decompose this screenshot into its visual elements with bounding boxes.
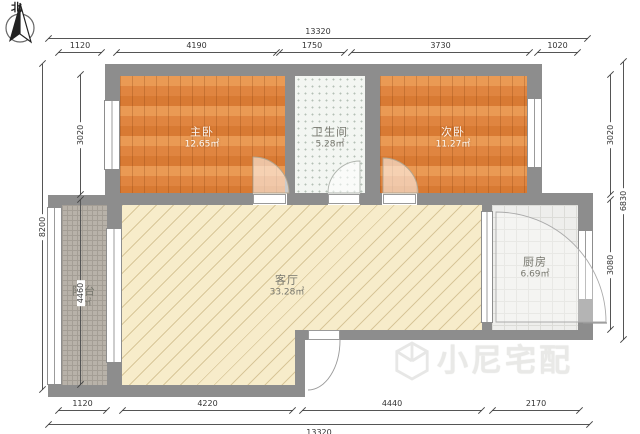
dim-top-2: 4190 [116,52,277,53]
floor-plan: 北 [0,0,640,434]
dim-right-1: 3020 [610,75,611,195]
room-name: 主卧 [185,126,220,140]
wall-bottom-right-b [340,330,593,340]
dim-left-total: 8200 [42,64,43,390]
dim-bottom-1: 1120 [58,410,107,411]
wall-mid-b [287,193,328,205]
label-kitchen: 厨房 6.69㎡ [520,256,549,281]
door-leaf-bath [328,194,360,204]
wall-bottom-left [48,385,305,397]
compass: 北 [2,0,42,56]
room-area: 6.69㎡ [520,269,549,280]
label-master-bedroom: 主卧 12.65㎡ [185,126,220,151]
room-name: 次卧 [436,126,471,140]
room-area: 33.28㎡ [270,287,305,298]
window-second-right [527,98,542,168]
wall-mid-c [360,193,382,205]
dim-top-4: 3730 [351,52,530,53]
room-name: 卫生间 [312,126,348,140]
wall-mid-a [120,193,253,205]
dim-value: 4220 [195,400,219,408]
door-leaf-entry [308,330,340,340]
label-living-room: 客厅 33.28㎡ [270,274,305,299]
dim-value: 1120 [70,400,94,408]
window-kitchen-right [578,230,593,300]
dim-value: 6830 [620,188,628,214]
wall-step [295,330,305,397]
wall-bath-second [365,76,380,193]
door-leaf-master [253,194,286,204]
dim-top-total: 13320 [48,38,588,39]
watermark-text: 小尼宅配 [437,346,573,377]
wall-bottom-right-a [295,330,308,340]
dim-left-1: 3020 [80,75,81,195]
dim-left-2: 4460 [80,200,81,385]
dim-right-total: 6830 [623,62,624,340]
dim-bottom-2: 4220 [122,410,293,411]
dim-value: 13320 [303,28,332,36]
wall-master-bath [285,76,295,193]
dim-top-5: 1020 [537,52,578,53]
room-area: 12.65㎡ [185,139,220,150]
room-name: 客厅 [270,274,305,288]
watermark: 小尼宅配 [393,340,573,382]
dim-value: 1750 [300,42,324,50]
dim-bottom-4: 2170 [492,410,580,411]
wall-top [105,64,542,76]
window-master-left [104,100,120,170]
label-bathroom: 卫生间 5.28㎡ [312,126,348,151]
door-swing-entry [308,340,340,390]
dim-value: 3080 [607,252,615,278]
wall-kitchen-stub-bot [482,323,492,330]
dim-bottom-total: 13320 [48,424,590,425]
dim-bottom-3: 4440 [302,410,482,411]
wall-mid-d [417,193,593,205]
dim-value: 4440 [380,400,404,408]
watermark-logo-icon [393,340,431,382]
dim-value: 3020 [77,122,85,148]
dim-value: 13320 [304,429,333,434]
dim-right-2: 3080 [610,200,611,330]
dim-top-3: 1750 [279,52,345,53]
door-kitchen-sliding [481,211,493,323]
north-label: 北 [11,0,22,15]
window-balcony-left [47,207,62,385]
label-second-bedroom: 次卧 11.27㎡ [436,126,471,151]
dim-value: 1020 [545,42,569,50]
dim-value: 2170 [524,400,548,408]
room-name: 厨房 [520,256,549,270]
dim-value: 1120 [68,42,92,50]
door-leaf-second [383,194,416,204]
dim-value: 4460 [77,279,85,305]
dim-value: 4190 [184,42,208,50]
window-balcony-divider [106,228,122,363]
room-area: 11.27㎡ [436,139,471,150]
room-area: 5.28㎡ [312,139,348,150]
dim-top-1: 1120 [58,52,102,53]
dim-value: 8200 [39,214,47,240]
dim-value: 3730 [428,42,452,50]
dim-value: 3020 [607,122,615,148]
